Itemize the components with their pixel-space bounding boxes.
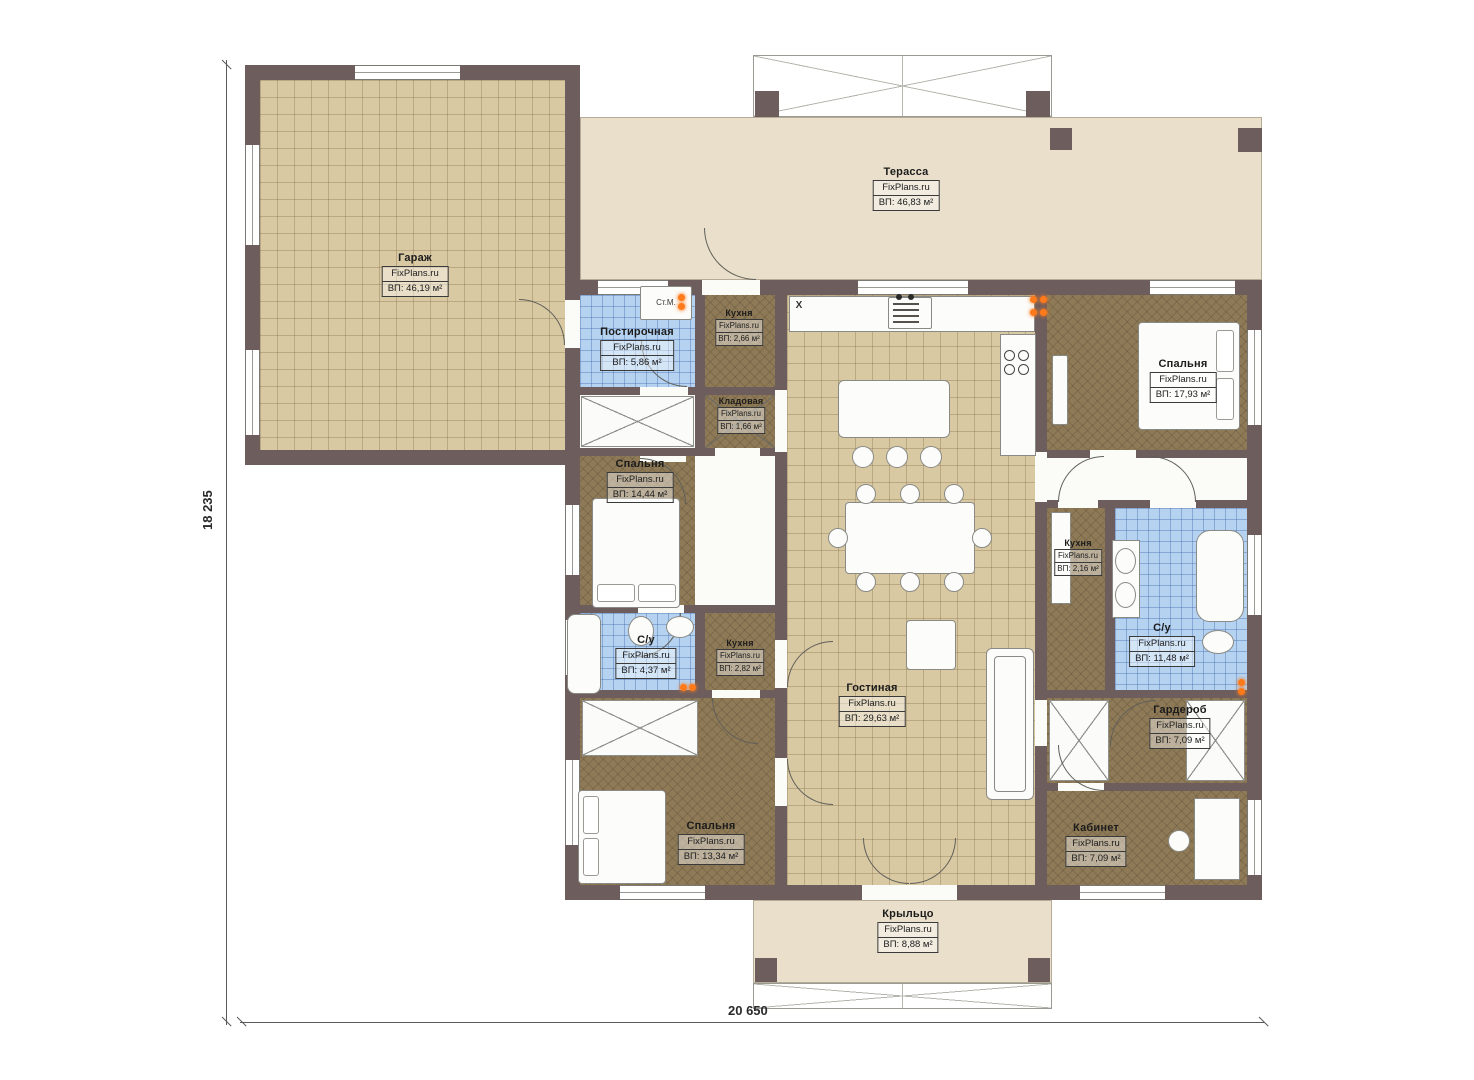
terrace-pillar — [755, 91, 779, 117]
heater-dot — [1040, 309, 1047, 316]
label-pantry: Кладовая FixPlans.ru ВП: 1,66 м² — [717, 396, 765, 434]
wall-interior-right-column — [1035, 295, 1047, 885]
room-area: ВП: 1,66 м² — [717, 421, 765, 434]
room-name: Гараж — [382, 252, 449, 265]
room-area: ВП: 8,88 м² — [877, 938, 938, 953]
label-garage: Гараж FixPlans.ru ВП: 46,19 м² — [382, 252, 449, 297]
toilet-icon — [1202, 630, 1234, 654]
floor-plan-canvas: X Ст.М. — [0, 0, 1474, 1080]
wall-under-bedroom-right — [1047, 450, 1247, 458]
porch-roof-gable — [753, 983, 1052, 1009]
room-area: ВП: 2,82 м² — [716, 663, 764, 676]
window — [1247, 535, 1262, 615]
wall-laundry-kitchen — [695, 295, 705, 455]
label-bedroom-left: Спальня FixPlans.ru ВП: 14,44 м² — [607, 458, 674, 503]
watermark: FixPlans.ru — [877, 922, 938, 938]
room-name: С/у — [1129, 622, 1195, 635]
room-area: ВП: 11,48 м² — [1129, 652, 1195, 667]
label-porch: Крыльцо FixPlans.ru ВП: 8,88 м² — [877, 908, 938, 953]
room-area: ВП: 14,44 м² — [607, 488, 674, 503]
watermark: FixPlans.ru — [382, 266, 449, 282]
porch-pillar — [1028, 958, 1050, 982]
terrace-pillar — [1026, 91, 1050, 117]
heater-dot — [1030, 296, 1037, 303]
door-gap-bedroom-bottom — [712, 690, 760, 698]
burner-icon — [1018, 364, 1029, 375]
sink-icon — [1115, 548, 1136, 574]
dimension-line-horizontal — [240, 1022, 1264, 1023]
window — [1247, 330, 1262, 425]
dining-chair-icon — [972, 528, 992, 548]
window — [565, 505, 580, 575]
dimension-line-vertical — [226, 60, 227, 1025]
kitchen-island — [838, 380, 950, 438]
door-gap-wardrobe — [1035, 700, 1047, 746]
window — [620, 885, 705, 900]
window — [245, 350, 260, 435]
label-bedroom-bottom: Спальня FixPlans.ru ВП: 13,34 м² — [678, 820, 745, 865]
label-bedroom-right: Спальня FixPlans.ru ВП: 17,93 м² — [1150, 358, 1217, 403]
room-area: ВП: 5,86 м² — [600, 356, 674, 371]
room-area: ВП: 2,66 м² — [715, 333, 763, 346]
room-name: Крыльцо — [877, 908, 938, 921]
pillow-icon — [1216, 378, 1234, 420]
sofa-cushion — [994, 656, 1026, 792]
window — [1150, 280, 1235, 295]
watermark: FixPlans.ru — [717, 407, 765, 421]
watermark: FixPlans.ru — [1150, 372, 1217, 388]
dimension-height-label: 18 235 — [200, 490, 215, 530]
burner-icon — [1018, 350, 1029, 361]
desk-icon — [1194, 798, 1240, 880]
dining-table — [845, 502, 975, 574]
watermark: FixPlans.ru — [678, 834, 745, 850]
room-name: Гардероб — [1149, 704, 1210, 717]
bathtub-icon — [567, 614, 601, 694]
dining-chair-icon — [828, 528, 848, 548]
dresser-icon — [1052, 355, 1068, 425]
label-office: Кабинет FixPlans.ru ВП: 7,09 м² — [1065, 822, 1126, 867]
watermark: FixPlans.ru — [839, 696, 906, 712]
window — [1080, 885, 1165, 900]
window — [858, 280, 968, 295]
dining-chair-icon — [856, 572, 876, 592]
oven-knob-icon — [896, 294, 902, 300]
corridor-left — [705, 456, 775, 605]
heater-dot — [1238, 688, 1245, 695]
watermark: FixPlans.ru — [600, 340, 674, 356]
oven-grill-icon — [893, 303, 919, 325]
room-name: С/у — [615, 634, 676, 647]
heater-dot — [1030, 309, 1037, 316]
terrace-roof-gable — [753, 55, 1052, 117]
opening-living-hall-right — [1035, 452, 1047, 502]
room-area: ВП: 4,37 м² — [615, 664, 676, 679]
watermark: FixPlans.ru — [873, 180, 940, 196]
terrace-pillar — [1050, 128, 1072, 150]
watermark: FixPlans.ru — [1065, 836, 1126, 852]
pillow-icon — [583, 796, 599, 834]
bathtub-icon — [1196, 530, 1244, 622]
wall-bath-kitchen-left — [695, 610, 705, 695]
wall-above-wardrobe — [1047, 690, 1247, 698]
heater-dot — [1040, 296, 1047, 303]
room-name: Спальня — [607, 458, 674, 471]
dining-chair-icon — [944, 484, 964, 504]
watermark: FixPlans.ru — [1129, 636, 1195, 652]
label-living: Гостиная FixPlans.ru ВП: 29,63 м² — [839, 682, 906, 727]
door-gap-porch — [862, 885, 957, 900]
closet-shelving — [581, 396, 694, 447]
burner-icon — [1004, 350, 1015, 361]
door-gap-laundry — [640, 387, 688, 395]
pillow-icon — [638, 584, 676, 602]
door-gap-terrace — [702, 280, 760, 295]
room-area: ВП: 29,63 м² — [839, 712, 906, 727]
label-laundry: Постирочная FixPlans.ru ВП: 5,86 м² — [600, 326, 674, 371]
room-name: Кухня — [715, 308, 763, 318]
room-area: ВП: 7,09 м² — [1149, 734, 1210, 749]
dining-chair-icon — [900, 572, 920, 592]
window — [245, 145, 260, 245]
office-chair-icon — [1168, 830, 1190, 852]
watermark: FixPlans.ru — [1054, 549, 1102, 563]
pillow-icon — [597, 584, 635, 602]
dining-chair-icon — [900, 484, 920, 504]
door-gap-hall-living — [775, 758, 787, 806]
watermark: FixPlans.ru — [716, 649, 764, 663]
dimension-width-label: 20 650 — [728, 1003, 768, 1018]
label-bathroom-right: С/у FixPlans.ru ВП: 11,48 м² — [1129, 622, 1195, 667]
washing-machine-icon: Ст.М. — [640, 286, 692, 320]
room-name: Спальня — [1150, 358, 1217, 371]
room-name: Кухня — [716, 638, 764, 648]
label-bathroom-left: С/у FixPlans.ru ВП: 4,37 м² — [615, 634, 676, 679]
terrace-pillar — [1238, 128, 1262, 152]
room-name: Гостиная — [839, 682, 906, 695]
sink-icon — [1115, 582, 1136, 608]
opening-corridor-living — [775, 390, 787, 452]
window — [355, 65, 460, 80]
label-terrace: Терасса FixPlans.ru ВП: 46,83 м² — [873, 166, 940, 211]
window-mark: X — [790, 300, 808, 311]
room-name: Терасса — [873, 166, 940, 179]
watermark: FixPlans.ru — [715, 319, 763, 333]
porch-pillar — [755, 958, 777, 982]
heater-dot — [678, 303, 685, 310]
pillow-icon — [583, 838, 599, 876]
room-name: Кабинет — [1065, 822, 1126, 835]
dining-chair-icon — [944, 572, 964, 592]
wall-garage-bottom — [245, 450, 580, 465]
burner-icon — [1004, 364, 1015, 375]
room-area: ВП: 13,34 м² — [678, 850, 745, 865]
door-gap-kitchen-left — [775, 640, 787, 688]
watermark: FixPlans.ru — [607, 472, 674, 488]
heater-dot — [689, 684, 696, 691]
bedroom-bottom-closet — [582, 700, 698, 756]
room-area: ВП: 7,09 м² — [1065, 852, 1126, 867]
room-area: ВП: 17,93 м² — [1150, 388, 1217, 403]
label-wardrobe: Гардероб FixPlans.ru ВП: 7,09 м² — [1149, 704, 1210, 749]
label-kitchen-top: Кухня FixPlans.ru ВП: 2,66 м² — [715, 308, 763, 346]
armchair-icon — [906, 620, 956, 670]
room-area: ВП: 2,16 м² — [1054, 563, 1102, 576]
room-area: ВП: 46,19 м² — [382, 282, 449, 297]
room-name: Кухня — [1054, 538, 1102, 548]
pillow-icon — [1216, 330, 1234, 372]
heater-dot — [1238, 679, 1245, 686]
door-gap-garage — [565, 300, 580, 348]
oven-knob-icon — [908, 294, 914, 300]
stool-icon — [852, 446, 874, 468]
dining-chair-icon — [856, 484, 876, 504]
watermark: FixPlans.ru — [1149, 718, 1210, 734]
stool-icon — [886, 446, 908, 468]
room-name: Кладовая — [717, 396, 765, 406]
heater-dot — [680, 684, 687, 691]
label-kitchen-right: Кухня FixPlans.ru ВП: 2,16 м² — [1054, 538, 1102, 576]
heater-dot — [678, 294, 685, 301]
room-name: Постирочная — [600, 326, 674, 339]
room-area: ВП: 46,83 м² — [873, 196, 940, 211]
stool-icon — [920, 446, 942, 468]
watermark: FixPlans.ru — [615, 648, 676, 664]
window — [1247, 800, 1262, 875]
room-name: Спальня — [678, 820, 745, 833]
door-gap-pantry — [715, 448, 760, 456]
label-kitchen-left: Кухня FixPlans.ru ВП: 2,82 м² — [716, 638, 764, 676]
